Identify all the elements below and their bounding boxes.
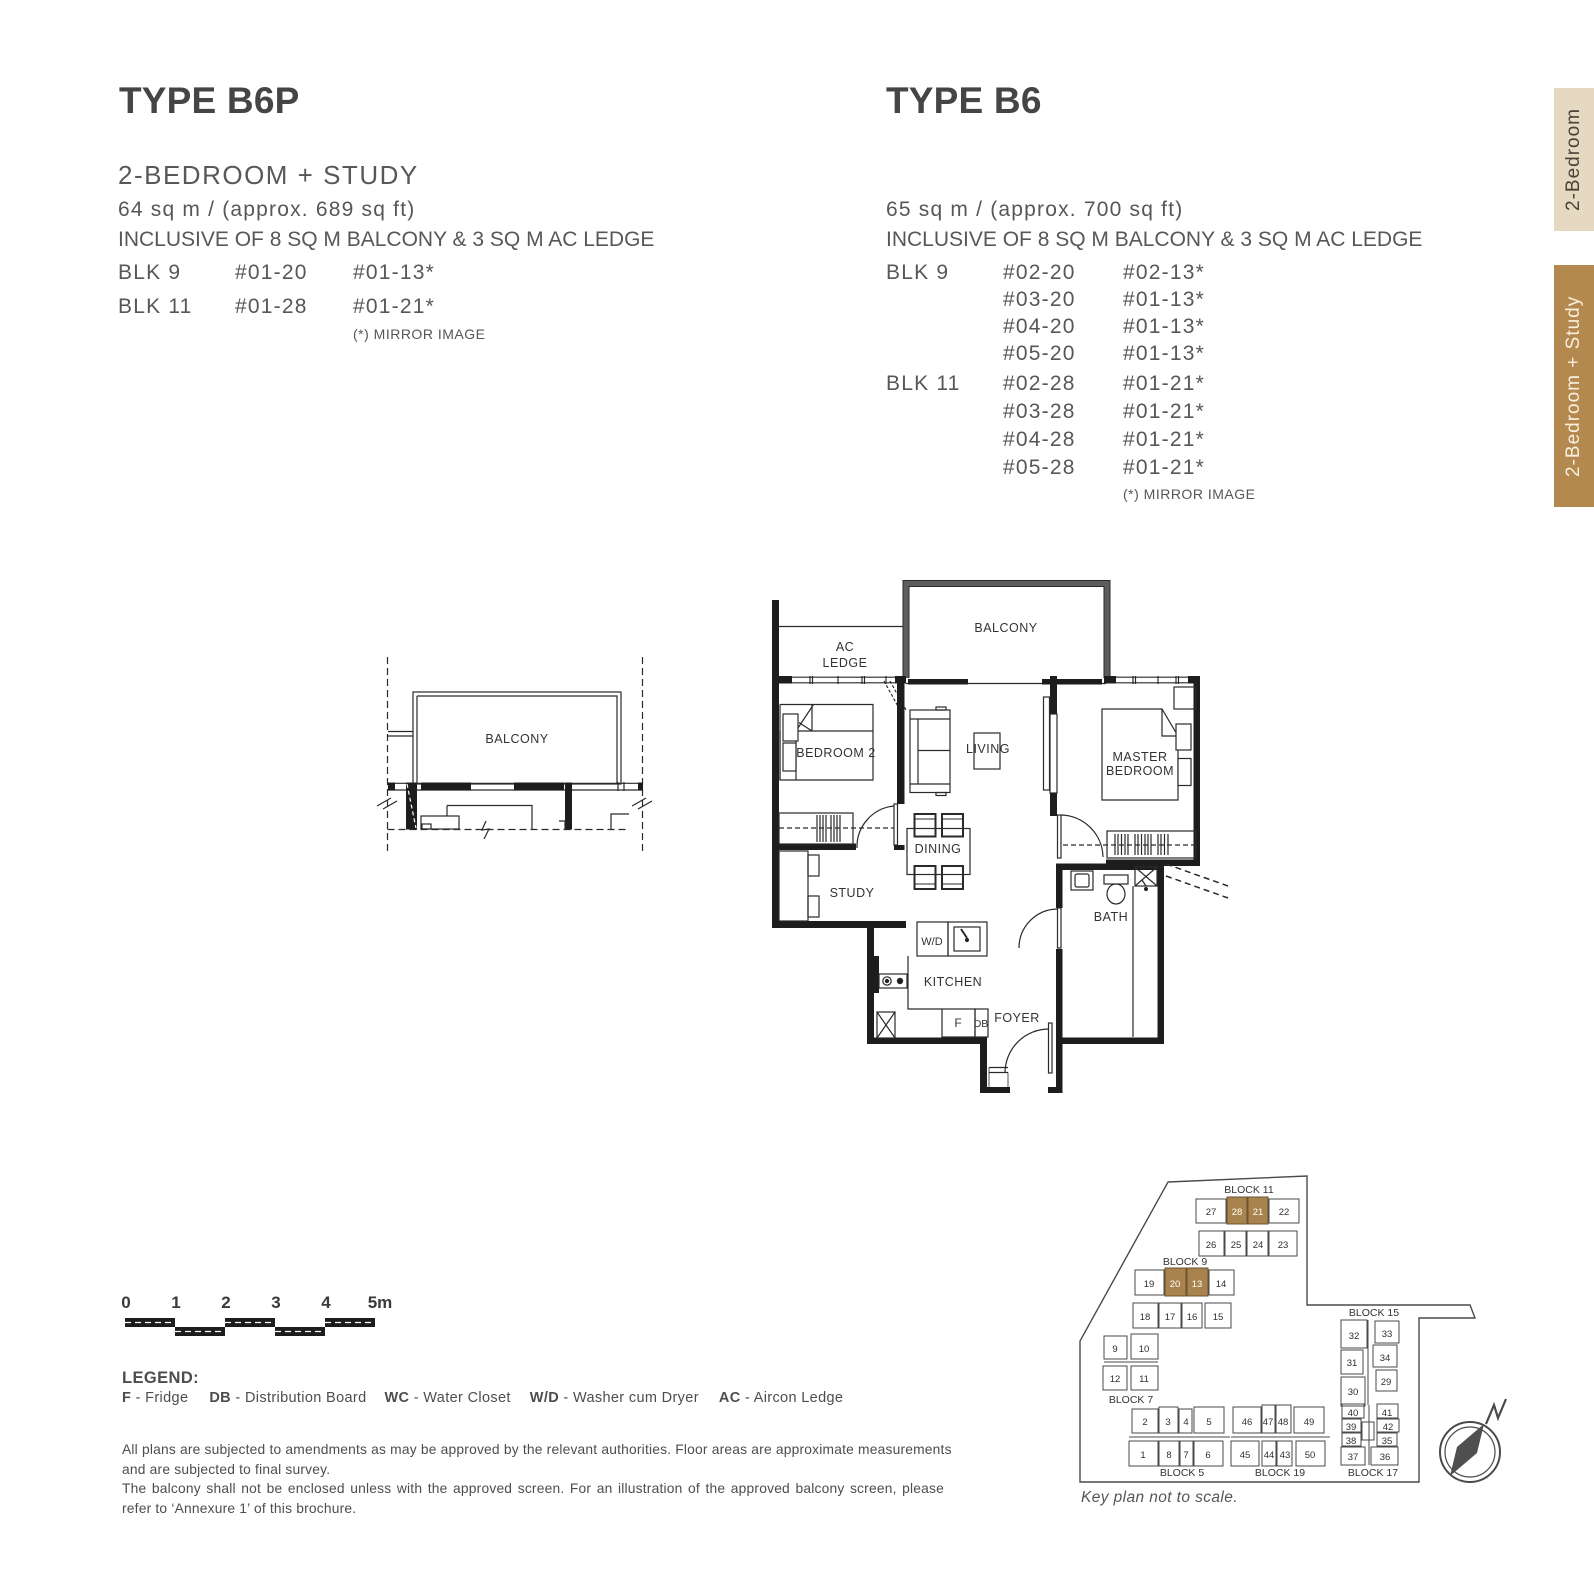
svg-text:BLOCK 15: BLOCK 15	[1349, 1307, 1399, 1319]
svg-text:11: 11	[1139, 1374, 1149, 1385]
svg-text:MASTER: MASTER	[1112, 750, 1167, 764]
svg-text:2: 2	[221, 1293, 230, 1312]
svg-text:49: 49	[1304, 1417, 1315, 1428]
svg-text:38: 38	[1346, 1436, 1357, 1447]
svg-text:23: 23	[1278, 1240, 1289, 1251]
svg-text:8: 8	[1166, 1450, 1171, 1461]
svg-text:4: 4	[321, 1293, 331, 1312]
svg-text:BEDROOM: BEDROOM	[1106, 764, 1174, 778]
svg-text:2: 2	[1142, 1417, 1147, 1428]
svg-text:30: 30	[1348, 1387, 1359, 1398]
svg-text:44: 44	[1264, 1450, 1275, 1461]
svg-text:STUDY: STUDY	[830, 886, 875, 900]
svg-text:BALCONY: BALCONY	[974, 621, 1037, 635]
svg-text:BLOCK 7: BLOCK 7	[1109, 1394, 1154, 1406]
svg-text:35: 35	[1382, 1436, 1393, 1447]
svg-text:21: 21	[1253, 1207, 1264, 1218]
svg-text:20: 20	[1170, 1279, 1181, 1290]
svg-text:BLOCK 17: BLOCK 17	[1348, 1467, 1398, 1479]
svg-text:39: 39	[1346, 1422, 1357, 1433]
svg-text:DINING: DINING	[915, 842, 962, 856]
svg-text:BLOCK 19: BLOCK 19	[1255, 1467, 1305, 1479]
svg-text:12: 12	[1110, 1374, 1121, 1385]
svg-text:17: 17	[1165, 1312, 1176, 1323]
svg-text:3: 3	[1165, 1417, 1170, 1428]
svg-text:34: 34	[1380, 1353, 1391, 1364]
svg-text:0: 0	[121, 1293, 130, 1312]
svg-text:7: 7	[1183, 1450, 1188, 1461]
svg-text:LIVING: LIVING	[966, 742, 1010, 756]
svg-text:40: 40	[1348, 1408, 1359, 1419]
svg-text:16: 16	[1187, 1312, 1198, 1323]
svg-text:26: 26	[1206, 1240, 1217, 1251]
svg-text:DB: DB	[974, 1018, 989, 1030]
svg-text:BLOCK 9: BLOCK 9	[1163, 1256, 1208, 1268]
svg-text:5m: 5m	[368, 1293, 393, 1312]
svg-text:46: 46	[1242, 1417, 1253, 1428]
svg-text:KITCHEN: KITCHEN	[924, 975, 982, 989]
svg-text:13: 13	[1192, 1279, 1203, 1290]
svg-text:W/D: W/D	[921, 936, 942, 948]
svg-text:48: 48	[1278, 1417, 1289, 1428]
svg-text:10: 10	[1139, 1344, 1150, 1355]
svg-text:25: 25	[1231, 1240, 1242, 1251]
svg-text:5: 5	[1206, 1417, 1211, 1428]
svg-text:15: 15	[1213, 1312, 1224, 1323]
svg-text:LEDGE: LEDGE	[823, 656, 868, 670]
svg-text:1: 1	[1140, 1450, 1145, 1461]
svg-text:19: 19	[1144, 1279, 1155, 1290]
svg-text:1: 1	[171, 1293, 180, 1312]
svg-text:28: 28	[1232, 1207, 1243, 1218]
svg-text:42: 42	[1383, 1422, 1394, 1433]
svg-text:9: 9	[1112, 1344, 1117, 1355]
svg-text:FOYER: FOYER	[994, 1011, 1040, 1025]
svg-text:BALCONY: BALCONY	[485, 732, 548, 746]
svg-text:BEDROOM 2: BEDROOM 2	[796, 746, 876, 760]
svg-text:F: F	[954, 1016, 961, 1030]
svg-text:37: 37	[1348, 1452, 1359, 1463]
svg-text:4: 4	[1183, 1417, 1188, 1428]
svg-text:36: 36	[1380, 1452, 1391, 1463]
svg-text:22: 22	[1279, 1207, 1290, 1218]
svg-text:41: 41	[1382, 1408, 1393, 1419]
svg-text:47: 47	[1263, 1417, 1274, 1428]
svg-text:32: 32	[1349, 1331, 1360, 1342]
svg-text:24: 24	[1253, 1240, 1264, 1251]
svg-text:45: 45	[1240, 1450, 1251, 1461]
svg-text:3: 3	[271, 1293, 280, 1312]
svg-text:43: 43	[1280, 1450, 1291, 1461]
svg-text:27: 27	[1206, 1207, 1217, 1218]
svg-text:50: 50	[1305, 1450, 1316, 1461]
svg-text:29: 29	[1381, 1377, 1392, 1388]
svg-text:18: 18	[1140, 1312, 1151, 1323]
svg-text:6: 6	[1205, 1450, 1210, 1461]
svg-text:BLOCK 11: BLOCK 11	[1224, 1184, 1274, 1196]
svg-text:31: 31	[1347, 1358, 1358, 1369]
svg-text:33: 33	[1382, 1329, 1393, 1340]
svg-text:BLOCK 5: BLOCK 5	[1160, 1467, 1205, 1479]
svg-text:BATH: BATH	[1094, 910, 1128, 924]
svg-text:AC: AC	[836, 640, 854, 654]
svg-text:14: 14	[1216, 1279, 1227, 1290]
